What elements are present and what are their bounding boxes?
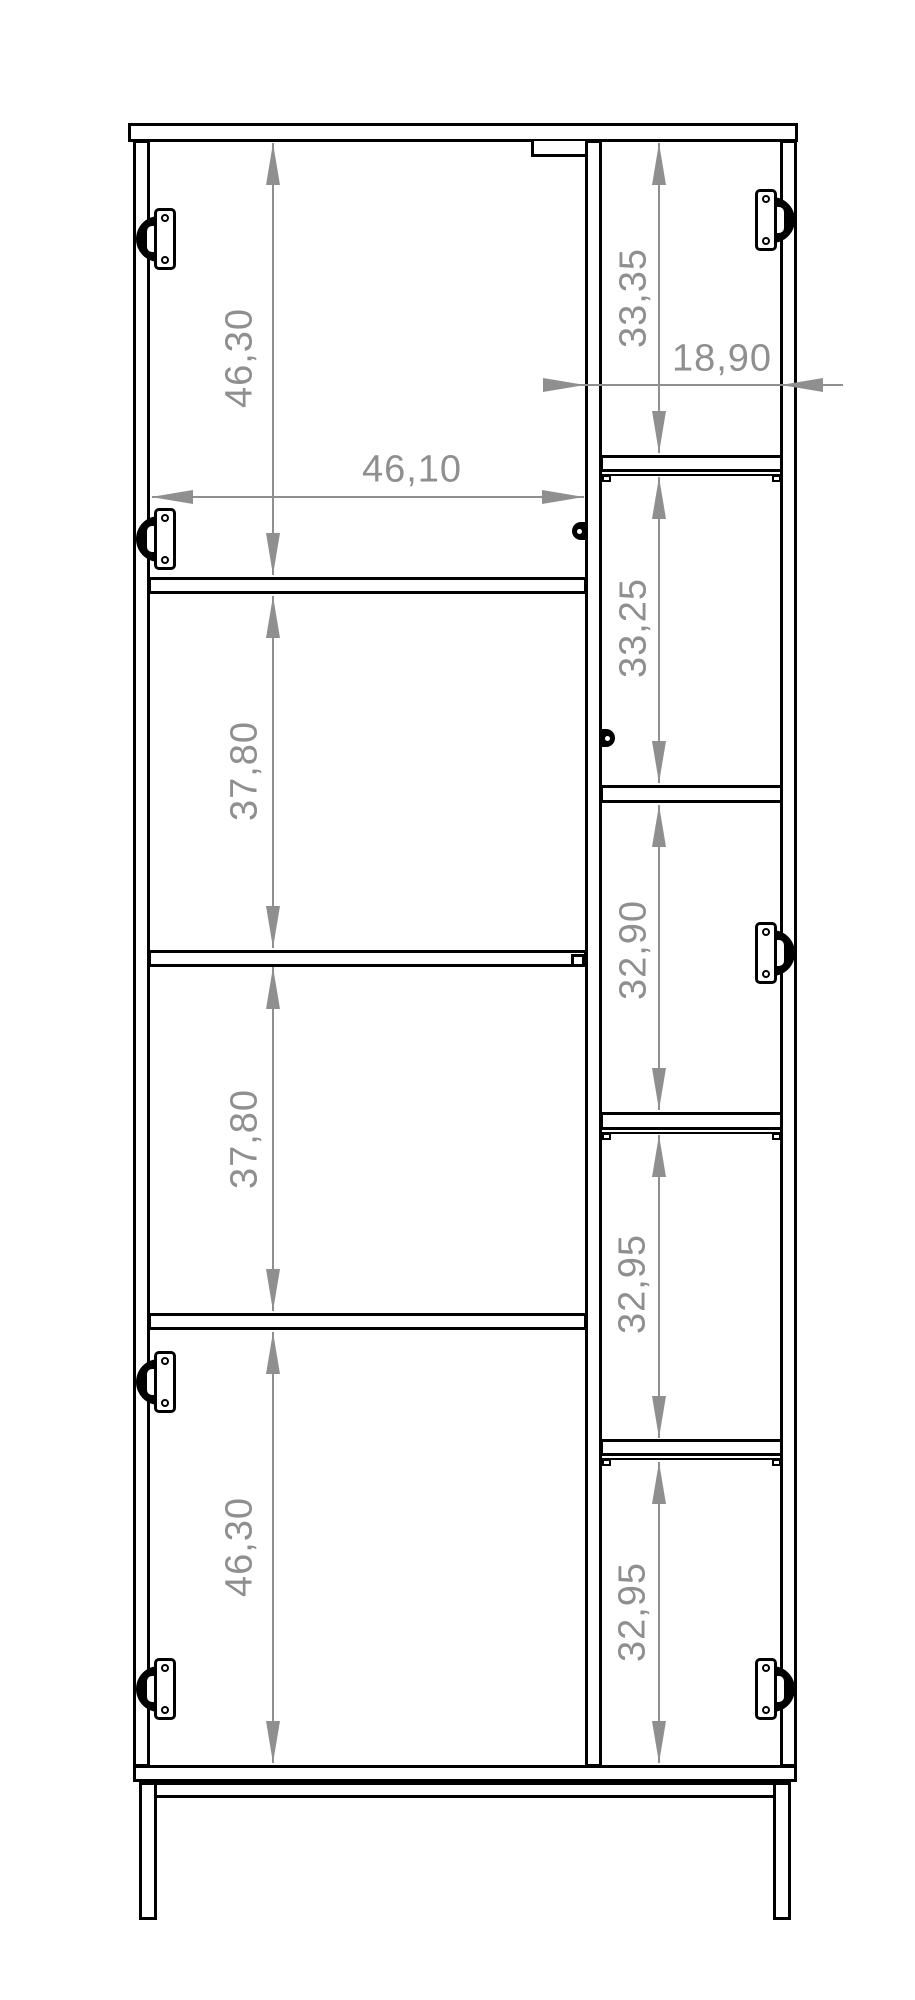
dim-arrow: [652, 1721, 666, 1763]
left-shelf-2-cam-fitting: [571, 954, 585, 967]
dim-arrow: [151, 490, 193, 504]
dim-arrow: [266, 1269, 280, 1311]
dim-line: [658, 1135, 660, 1438]
dim-line: [272, 143, 274, 575]
right-shelf-4-support-hook-left: [602, 1459, 611, 1466]
top-panel: [128, 123, 798, 142]
right-shelf-4-support-rail: [602, 1458, 781, 1460]
dim-label-left-2: 37,80: [224, 721, 267, 821]
dim-arrow: [781, 378, 823, 392]
right-shelf-3-support-hook-left: [602, 1133, 611, 1140]
dim-arrow: [652, 805, 666, 847]
bottom-panel: [133, 1765, 797, 1782]
top-rail-notch: [531, 141, 585, 157]
right-shelf-1: [600, 455, 783, 472]
dim-arrow: [652, 477, 666, 519]
dim-arrow: [266, 143, 280, 185]
dim-label-right-width: 18,90: [672, 338, 772, 381]
right-shelf-3-support-hook-right: [772, 1133, 781, 1140]
dim-line: [152, 496, 584, 498]
dim-arrow: [266, 1332, 280, 1374]
dim-label-left-3: 37,80: [224, 1089, 267, 1189]
cam-knob-dot: [605, 736, 610, 741]
dim-label-right-3: 32,90: [613, 900, 656, 1000]
dim-arrow: [652, 411, 666, 453]
left-shelf-1: [148, 577, 587, 594]
dim-label-left-4: 46,30: [219, 1497, 262, 1597]
dim-arrow: [652, 1135, 666, 1177]
right-shelf-3-support-rail: [602, 1132, 781, 1134]
left-shelf-2: [148, 950, 587, 967]
assembly-drawing-canvas: 46,30 37,80 37,80 46,30 33,35 33,25 32,9…: [0, 0, 915, 2000]
cam-knob-dot: [577, 529, 582, 534]
dim-arrow: [652, 1396, 666, 1438]
dim-arrow: [542, 490, 584, 504]
right-shelf-1-support-hook-right: [772, 475, 781, 482]
dim-arrow: [652, 143, 666, 185]
dim-label-right-2: 33,25: [613, 578, 656, 678]
dim-arrow: [266, 906, 280, 948]
dim-arrow: [266, 1721, 280, 1763]
dim-arrow: [652, 741, 666, 783]
dim-line: [658, 1462, 660, 1763]
right-shelf-1-support-hook-left: [602, 475, 611, 482]
right-shelf-1-support-rail: [602, 474, 781, 476]
left-leg: [139, 1782, 157, 1920]
dim-line: [658, 477, 660, 783]
dim-label-left-width: 46,10: [362, 449, 462, 492]
dim-line: [658, 805, 660, 1110]
base-rail: [139, 1782, 791, 1798]
dim-line: [272, 596, 274, 948]
dim-line: [272, 967, 274, 1311]
dim-arrow: [266, 533, 280, 575]
dim-arrow: [652, 1462, 666, 1504]
right-shelf-3: [600, 1112, 783, 1130]
right-shelf-4-support-hook-right: [772, 1459, 781, 1466]
right-shelf-2: [600, 785, 783, 803]
dim-arrow: [543, 378, 585, 392]
right-leg: [773, 1782, 791, 1920]
dim-arrow: [266, 596, 280, 638]
dim-arrow: [652, 1068, 666, 1110]
dim-line: [272, 1332, 274, 1763]
dim-label-right-4: 32,95: [612, 1234, 655, 1334]
dim-line: [658, 143, 660, 453]
dim-label-right-1: 33,35: [613, 248, 656, 348]
dim-label-left-1: 46,30: [219, 308, 262, 408]
dim-label-right-5: 32,95: [612, 1562, 655, 1662]
left-shelf-3: [148, 1313, 587, 1330]
dim-arrow: [266, 967, 280, 1009]
right-shelf-4: [600, 1439, 783, 1456]
